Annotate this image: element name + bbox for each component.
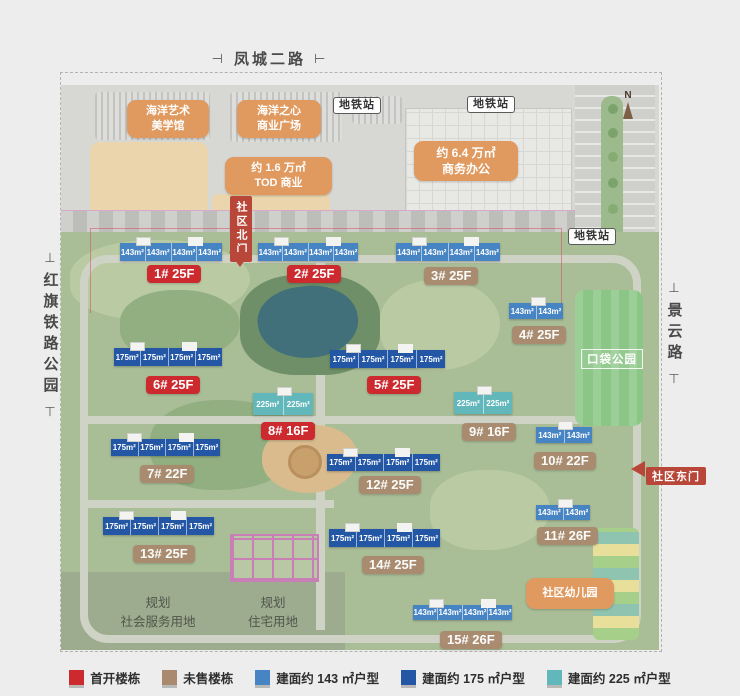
building-13-tag: 13# 25F [133, 545, 195, 563]
road-right-label: 景云路 [664, 302, 685, 365]
planned-service-land-label: 规划 社会服务用地 [108, 594, 208, 633]
unit-area-label: 175m² [357, 529, 385, 547]
building-15-units: 143m²143m²143m²143m² [413, 605, 512, 620]
unit-area-label: 143m² [509, 303, 537, 319]
unit-area-label: 143m² [309, 243, 334, 261]
unit-area-label: 143m² [422, 243, 448, 261]
unit-area-label: 143m² [258, 243, 283, 261]
compass-label: N [624, 90, 631, 101]
road-tick-left: ⊣ [212, 51, 226, 67]
unit-area-label: 143m² [463, 605, 488, 620]
unit-area-label: 175m² [356, 454, 385, 471]
legend-swatch-first [69, 670, 84, 685]
unit-area-label: 143m² [475, 243, 500, 261]
unit-area-label: 175m² [139, 439, 167, 456]
building-5-units: 175m²175m²175m²175m² [330, 350, 445, 368]
building-12-units: 175m²175m²175m²175m² [327, 454, 440, 471]
metro-station-label-2: 地铁站 [467, 96, 515, 113]
building-13-units: 175m²175m²175m²175m² [103, 517, 214, 535]
unit-area-label: 175m² [329, 529, 357, 547]
tod-plaza [90, 142, 208, 216]
road-left-tick-bottom: ⊤ [44, 404, 55, 420]
unit-area-label: 143m² [120, 243, 146, 261]
unit-area-label: 143m² [438, 605, 463, 620]
building-4-units: 143m²143m² [509, 303, 563, 319]
unit-area-label: 175m² [327, 454, 356, 471]
unit-area-label: 143m² [536, 427, 565, 443]
building-14-tag: 14# 25F [362, 556, 424, 574]
legend-item-225: 建面约 225 ㎡户型 [547, 668, 671, 687]
unit-area-label: 143m² [565, 427, 593, 443]
unit-area-label: 175m² [111, 439, 139, 456]
unit-area-label: 175m² [413, 529, 440, 547]
building-2-units: 143m²143m²143m²143m² [258, 243, 358, 261]
building-4-tag: 4# 25F [512, 326, 566, 344]
unit-area-label: 175m² [169, 348, 196, 366]
building-15-tag: 15# 26F [440, 631, 502, 649]
unit-area-label: 175m² [417, 350, 445, 368]
building-3-units: 143m²143m²143m²143m² [396, 243, 500, 261]
building-5-tag: 5# 25F [367, 376, 421, 394]
unit-area-label: 143m² [172, 243, 198, 261]
metro-station-label-3: 地铁站 [568, 228, 616, 245]
building-9-units: 225m²225m² [454, 392, 512, 414]
unit-area-label: 175m² [166, 439, 194, 456]
road-left-tick-top: ⊥ [44, 250, 55, 266]
unit-area-label: 225m² [484, 392, 513, 414]
office-label: 约 6.4 万㎡ 商务办公 [414, 141, 518, 181]
unit-area-label: 175m² [384, 454, 413, 471]
unit-area-label: 225m² [253, 393, 284, 415]
building-2-tag: 2# 25F [287, 265, 341, 283]
legend-item-143: 建面约 143 ㎡户型 [255, 668, 379, 687]
building-6-tag: 6# 25F [146, 376, 200, 394]
pocket-park-label: 口袋公园 [581, 349, 643, 369]
unit-area-label: 143m² [536, 505, 564, 520]
legend: 首开楼栋 未售楼栋 建面约 143 ㎡户型 建面约 175 ㎡户型 建面约 22… [0, 668, 740, 687]
unit-area-label: 175m² [187, 517, 214, 535]
unit-area-label: 225m² [284, 393, 314, 415]
unit-area-label: 175m² [385, 529, 413, 547]
building-3-tag: 3# 25F [424, 267, 478, 285]
legend-label: 首开楼栋 [90, 668, 140, 687]
unit-area-label: 175m² [388, 350, 417, 368]
ocean-mall-label: 海洋之心 商业广场 [237, 100, 321, 138]
road-top-label: 凤城二路 [234, 48, 306, 69]
building-14-units: 175m²175m²175m²175m² [329, 529, 440, 547]
unit-area-label: 175m² [413, 454, 441, 471]
metro-station-label-1: 地铁站 [333, 97, 381, 114]
north-gate-arrow-icon [229, 252, 251, 267]
building-11-tag: 11# 26F [537, 527, 598, 545]
building-11-units: 143m²143m² [536, 505, 590, 520]
tod-label: 约 1.6 万㎡ TOD 商业 [225, 157, 332, 195]
east-gate-arrow-icon [631, 461, 645, 477]
east-gate-label: 社区东门 [646, 467, 706, 485]
road-top: ⊣ 凤城二路 ⊢ [120, 48, 420, 69]
site-plan-map: ⊣ 凤城二路 ⊢ ⊥ 红旗铁路公园 ⊤ ⊥ 景云路 ⊤ 143m²143m²14… [0, 0, 740, 696]
unit-area-label: 225m² [454, 392, 484, 414]
legend-swatch-unsold [162, 670, 177, 685]
unit-area-label: 143m² [283, 243, 308, 261]
unit-area-label: 143m² [146, 243, 172, 261]
building-8-tag: 8# 16F [261, 422, 315, 440]
legend-item-unsold: 未售楼栋 [162, 668, 233, 687]
legend-item-175: 建面约 175 ㎡户型 [401, 668, 525, 687]
road-left-label: 红旗铁路公园 [40, 272, 61, 398]
unit-area-label: 175m² [141, 348, 168, 366]
unit-area-label: 175m² [330, 350, 359, 368]
road-tick-right: ⊢ [314, 51, 328, 67]
unit-area-label: 143m² [488, 605, 512, 620]
legend-swatch-175 [401, 670, 416, 685]
legend-label: 未售楼栋 [183, 668, 233, 687]
legend-label: 建面约 143 ㎡户型 [276, 668, 379, 687]
unit-area-label: 143m² [537, 303, 564, 319]
road-right-tick-bottom: ⊤ [668, 371, 679, 387]
playground-ring [288, 445, 322, 479]
legend-swatch-225 [547, 670, 562, 685]
building-6-units: 175m²175m²175m²175m² [114, 348, 222, 366]
internal-road [84, 500, 334, 508]
building-10-units: 143m²143m² [536, 427, 592, 443]
unit-area-label: 143m² [396, 243, 422, 261]
unit-area-label: 143m² [449, 243, 475, 261]
building-7-tag: 7# 22F [140, 465, 194, 483]
legend-swatch-143 [255, 670, 270, 685]
compass-arrow [623, 102, 633, 119]
legend-item-first: 首开楼栋 [69, 668, 140, 687]
road-right-tick-top: ⊥ [668, 280, 679, 296]
building-1-tag: 1# 25F [147, 265, 201, 283]
legend-label: 建面约 175 ㎡户型 [422, 668, 525, 687]
unit-area-label: 175m² [196, 348, 222, 366]
unit-area-label: 175m² [159, 517, 187, 535]
legend-label: 建面约 225 ㎡户型 [568, 668, 671, 687]
internal-road [84, 416, 621, 424]
compass-north-icon: N [618, 90, 638, 119]
unit-area-label: 175m² [359, 350, 388, 368]
art-museum-label: 海洋艺术 美学馆 [127, 100, 209, 138]
building-1-units: 143m²143m²143m²143m² [120, 243, 222, 261]
unit-area-label: 143m² [334, 243, 358, 261]
building-10-tag: 10# 22F [534, 452, 596, 470]
building-9-tag: 9# 16F [462, 423, 516, 441]
unit-area-label: 175m² [194, 439, 221, 456]
unit-area-label: 175m² [131, 517, 159, 535]
building-7-units: 175m²175m²175m²175m² [111, 439, 220, 456]
unit-area-label: 175m² [103, 517, 131, 535]
trees [608, 104, 618, 114]
road-right: ⊥ 景云路 ⊤ [660, 280, 688, 387]
planned-residential-land-label: 规划 住宅用地 [228, 594, 318, 633]
building-12-tag: 12# 25F [359, 476, 421, 494]
unit-area-label: 175m² [114, 348, 141, 366]
community-garden [230, 534, 319, 582]
unit-area-label: 143m² [197, 243, 222, 261]
unit-area-label: 143m² [413, 605, 438, 620]
building-8-units: 225m²225m² [253, 393, 313, 415]
kindergarten-label: 社区幼儿园 [526, 578, 614, 609]
unit-area-label: 143m² [564, 505, 591, 520]
